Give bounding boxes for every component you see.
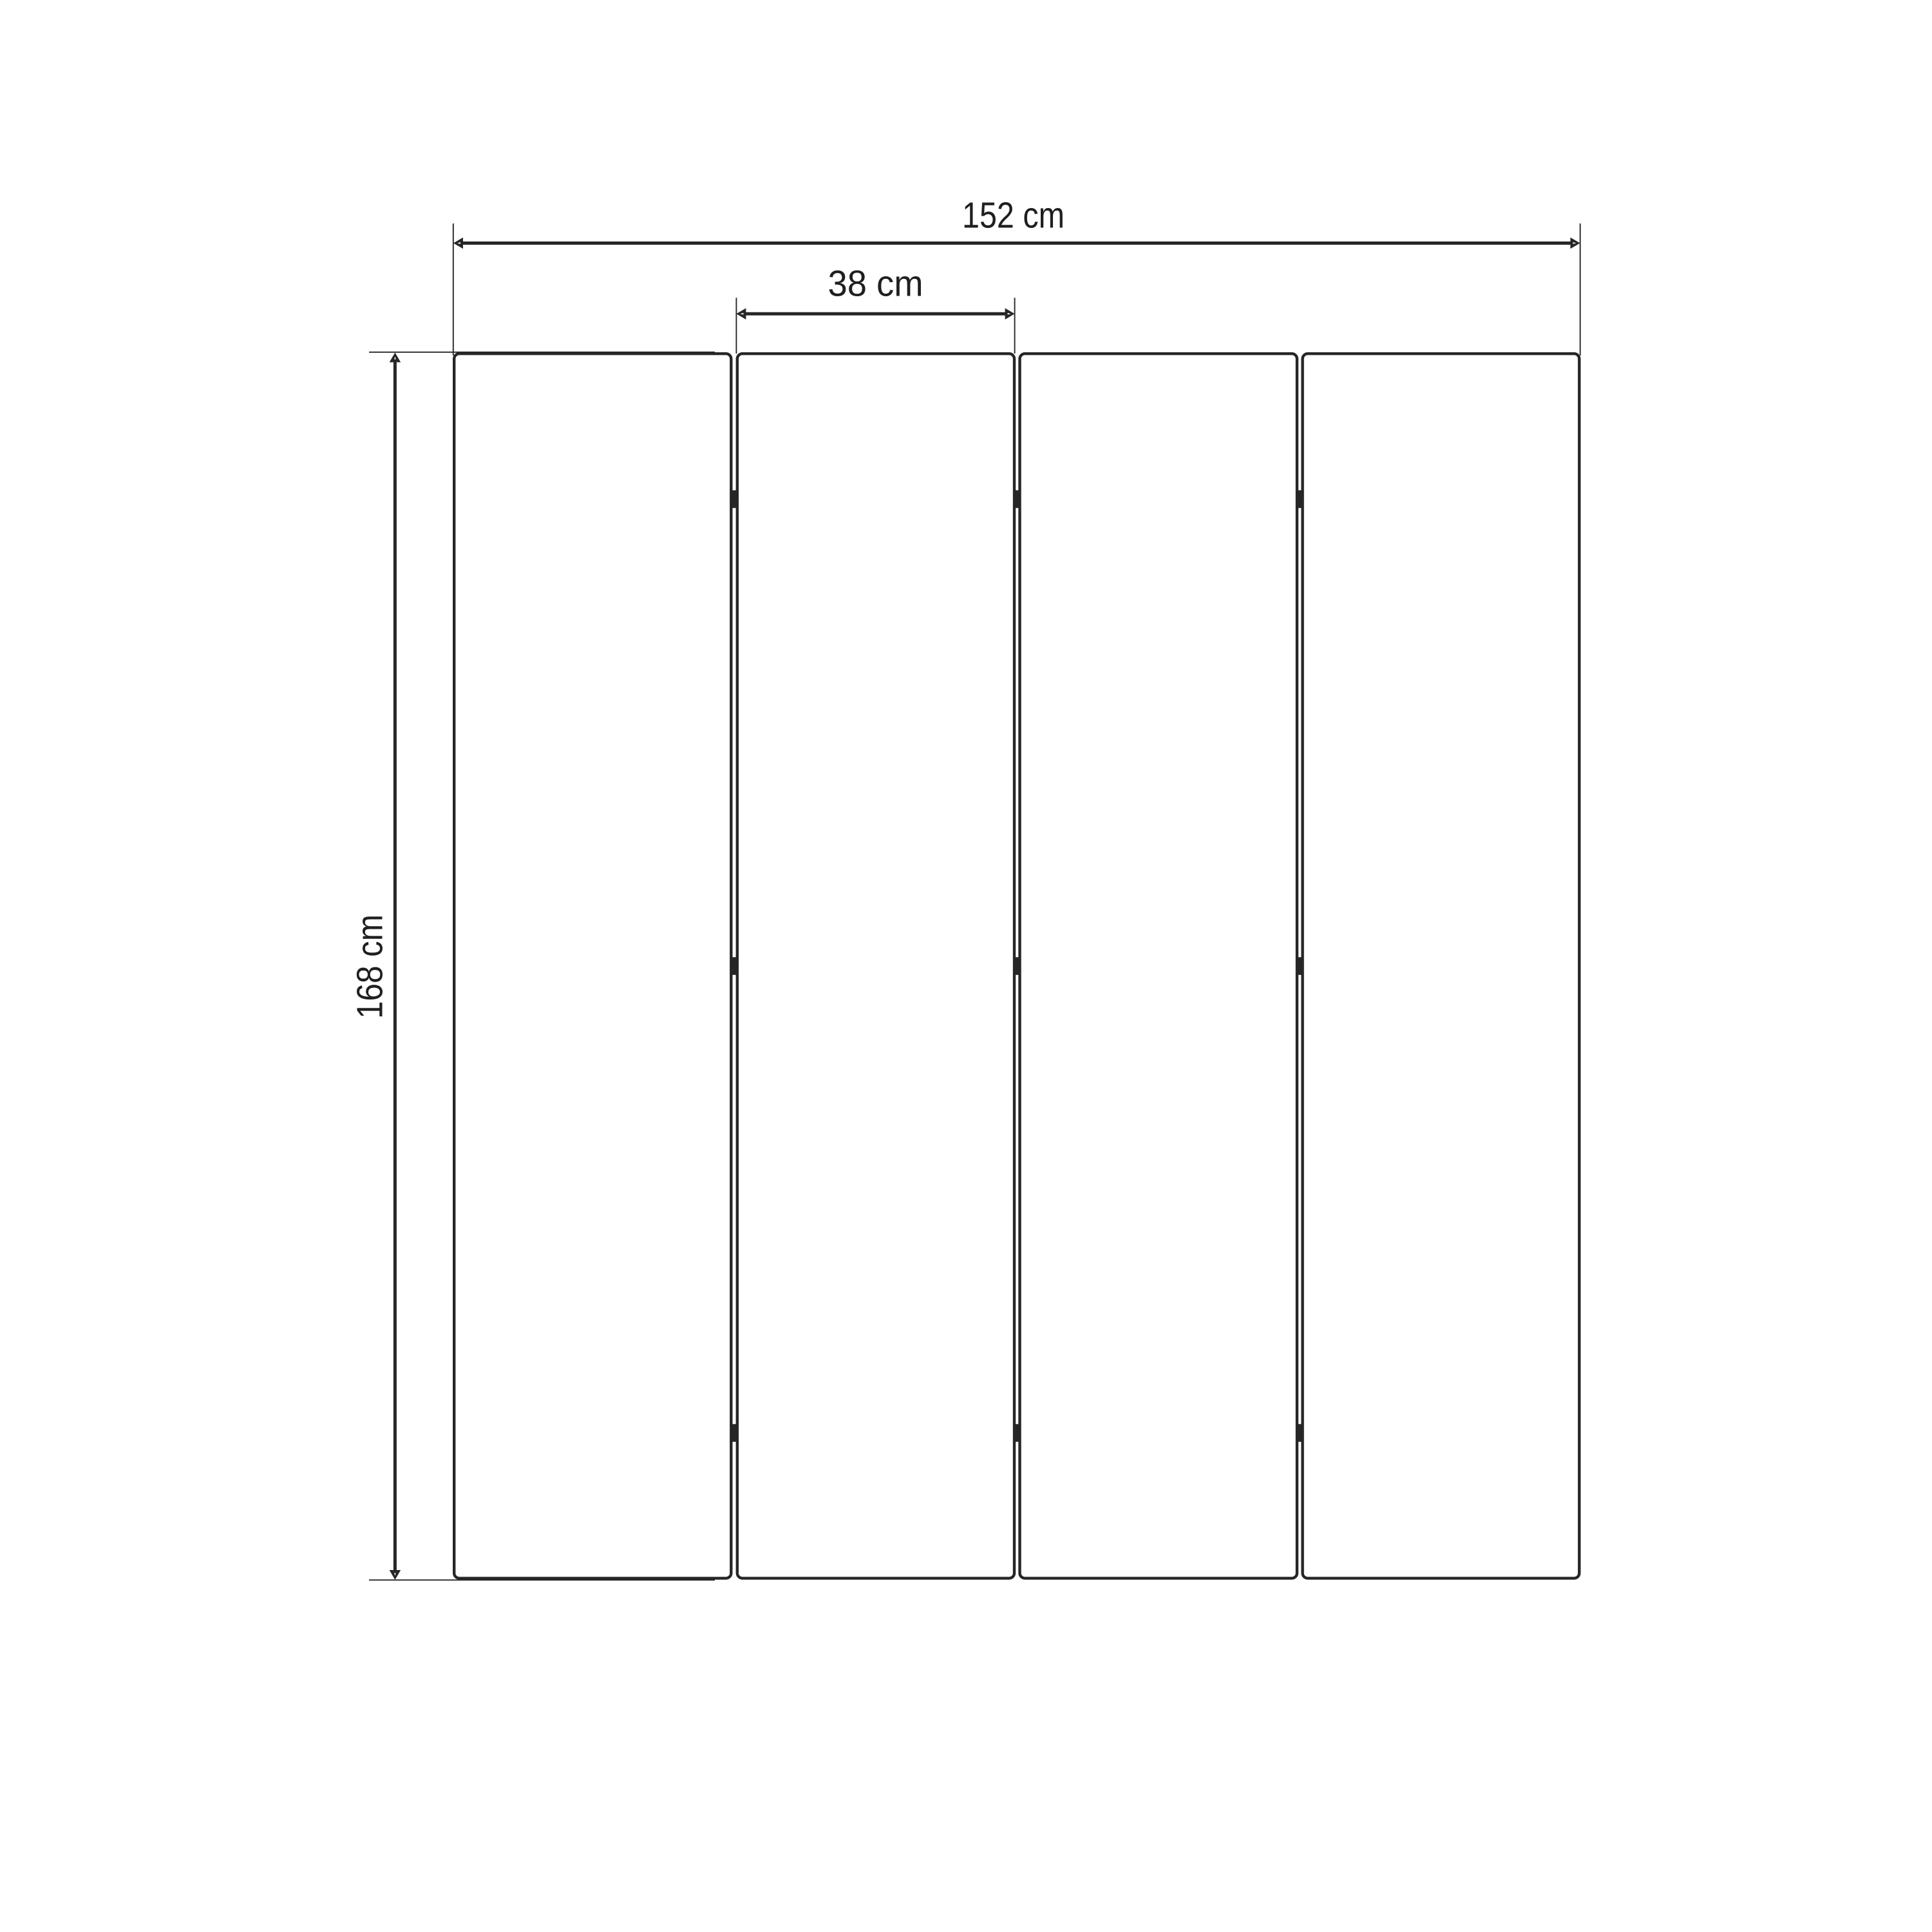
svg-text:38 cm: 38 cm bbox=[828, 263, 923, 304]
svg-text:152 cm: 152 cm bbox=[962, 195, 1065, 236]
svg-text:168 cm: 168 cm bbox=[350, 914, 390, 1019]
